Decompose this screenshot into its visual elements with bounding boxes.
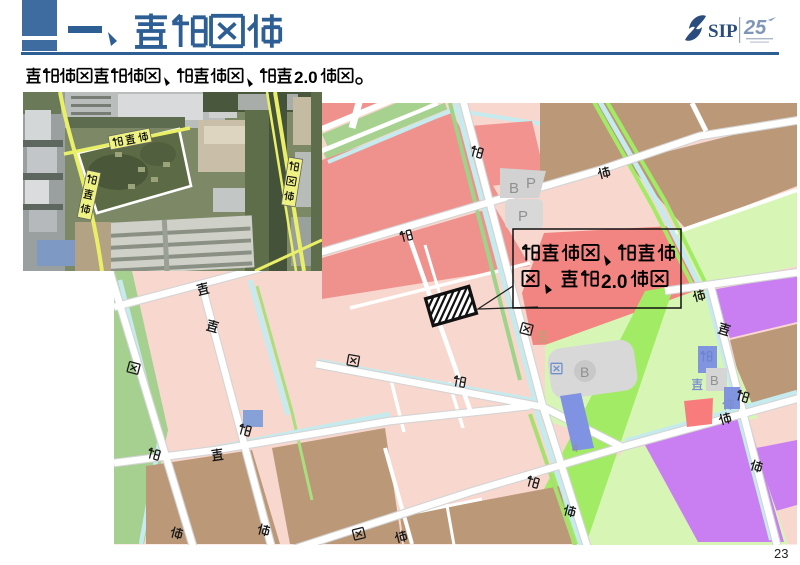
svg-text:P: P (526, 175, 536, 192)
svg-text:SIP: SIP (708, 21, 738, 42)
svg-text:4: 4 (572, 443, 578, 455)
svg-text:2.0: 2.0 (601, 272, 627, 293)
svg-text:2.0: 2.0 (294, 68, 318, 87)
svg-text:B: B (710, 373, 719, 388)
svg-text:25: 25 (743, 17, 767, 39)
svg-text:B: B (509, 180, 519, 197)
svg-text:P: P (518, 208, 528, 225)
svg-text:B: B (580, 364, 589, 380)
